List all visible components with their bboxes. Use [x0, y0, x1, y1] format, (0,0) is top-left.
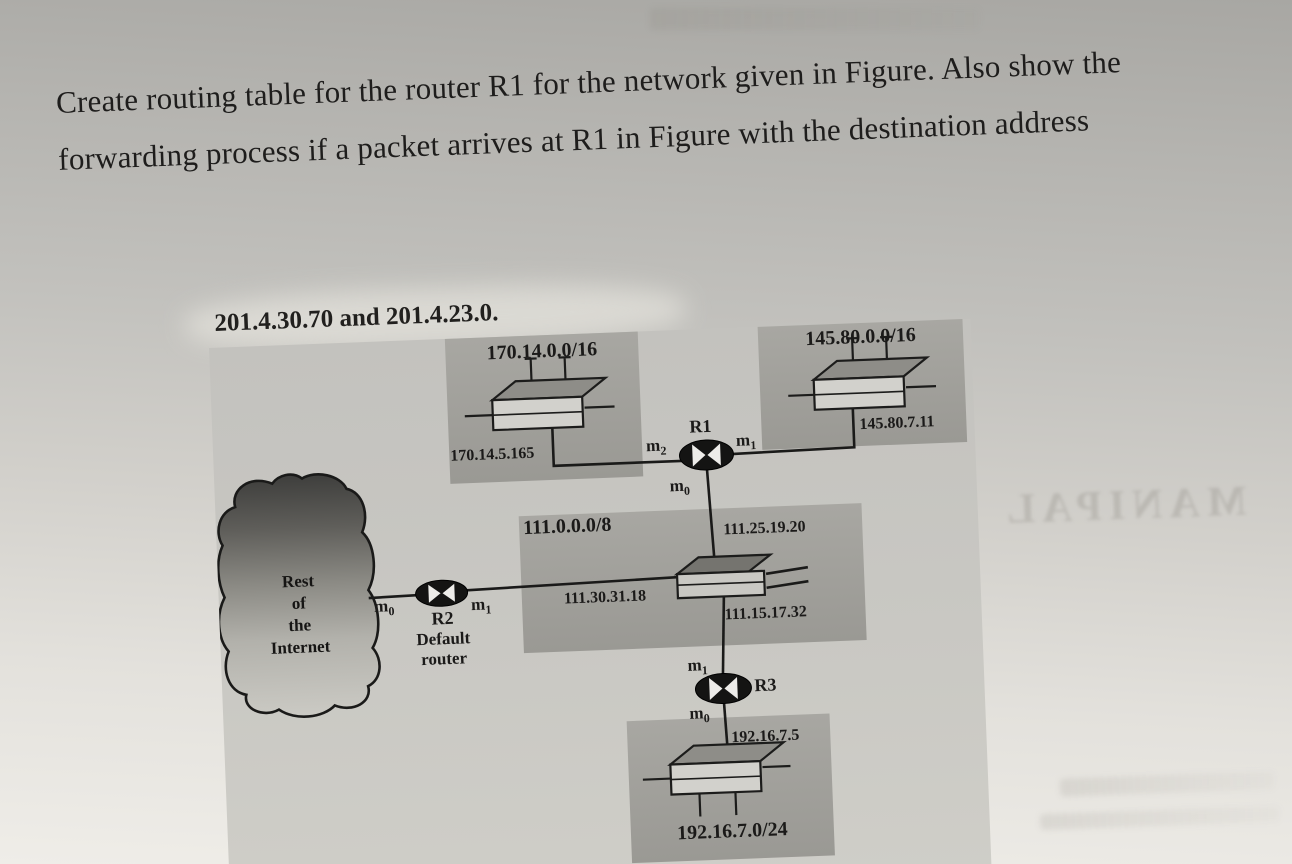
interface-label-r2-m1: m1 — [471, 594, 492, 615]
switch-icon-111 — [676, 555, 771, 599]
switch-icon-170-14 — [463, 356, 616, 432]
cloud-text: Rest of the Internet — [246, 569, 353, 661]
router-icon-r1 — [679, 439, 734, 471]
address-label-192-16-7-5: 192.16.7.5 — [731, 727, 800, 748]
router-label-r1: R1 — [689, 416, 712, 438]
address-label-111-15-17-32: 111.15.17.32 — [724, 603, 807, 624]
bleedthrough-text: MANIPAL — [999, 478, 1247, 535]
interface-label-r1-m2: m2 — [646, 436, 667, 457]
router-label-r3: R3 — [754, 674, 777, 696]
interface-label-r2-m0: m0 — [374, 596, 395, 617]
interface-label-r3-m0: m0 — [689, 703, 710, 724]
switch-icon-192-16 — [642, 742, 793, 819]
router-label-r2: R2 — [415, 607, 470, 629]
photo-page: MANIPAL Create routing table for the rou… — [0, 0, 1292, 864]
interface-label-r3-m1: m1 — [687, 655, 708, 676]
paper-smudge — [650, 8, 980, 30]
interface-label-r1-m0: m0 — [669, 476, 690, 497]
paper-smudge — [1040, 806, 1280, 830]
address-label-111-25-19-20: 111.25.19.20 — [723, 518, 806, 539]
paper-smudge — [1060, 771, 1275, 796]
address-label-145-80-7-11: 145.80.7.11 — [859, 413, 935, 434]
question-text: Create routing table for the router R1 f… — [55, 26, 1292, 188]
destination-addresses: 201.4.30.70 and 201.4.23.0. — [214, 299, 499, 338]
router-role-router: router — [405, 648, 484, 671]
address-label-170-14-5-165: 170.14.5.165 — [450, 445, 535, 466]
router-icon-r2 — [415, 579, 468, 607]
cloud-line-internet: Internet — [248, 635, 353, 661]
figure-panel: 170.14.0.0/16 170.14.5.165 145.80.0.0/16… — [209, 319, 992, 864]
cidr-label-111: 111.0.0.0/8 — [523, 514, 612, 540]
address-label-111-30-31-18: 111.30.31.18 — [564, 587, 647, 608]
interface-label-r1-m1: m1 — [736, 430, 757, 451]
